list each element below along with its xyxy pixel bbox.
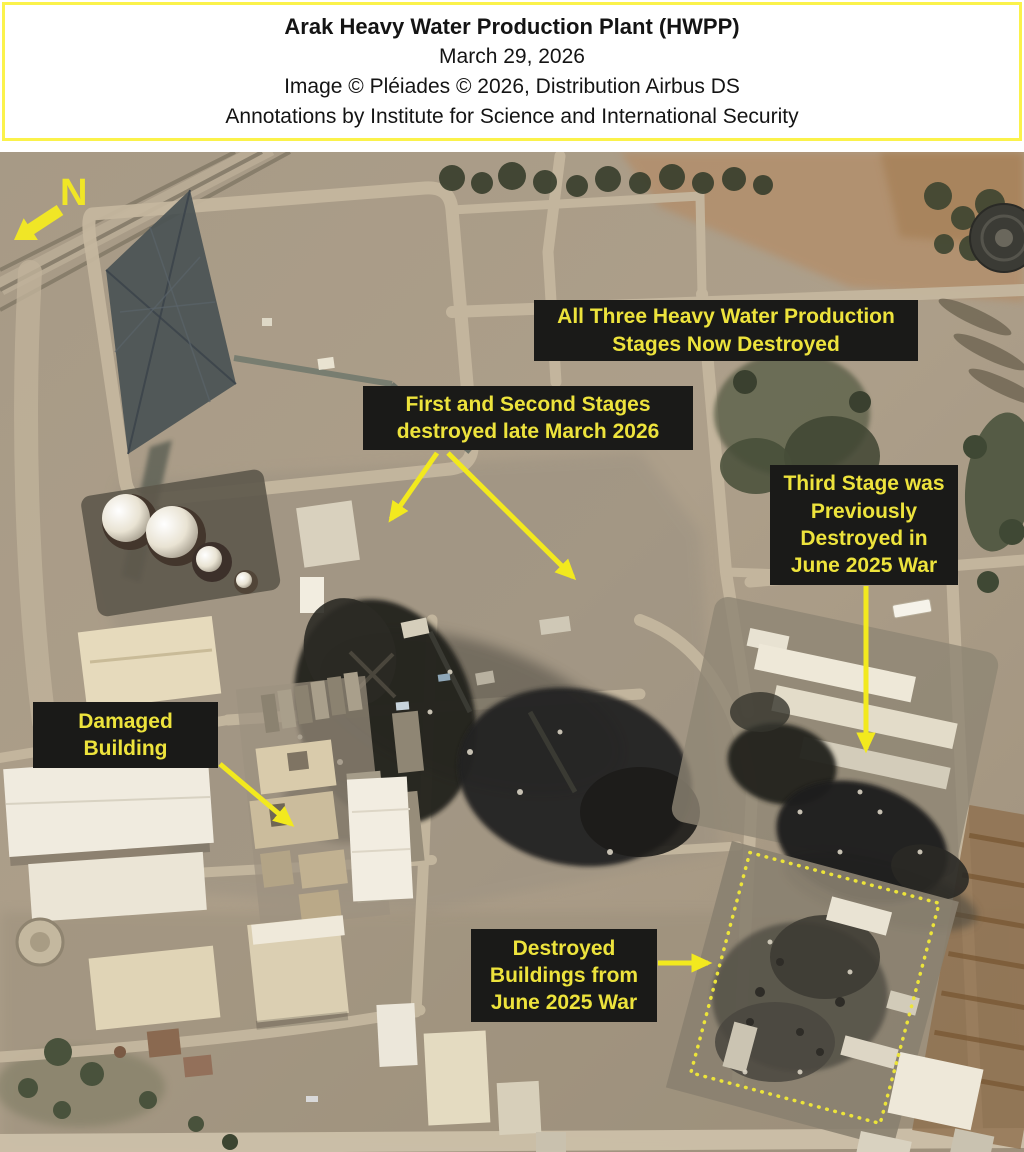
callout-line: Previously: [811, 498, 917, 525]
callout-line: Destroyed in: [800, 525, 927, 552]
north-arrow-icon: [14, 205, 63, 240]
callout-damaged-building: Damaged Building: [33, 702, 218, 768]
callout-line: Destroyed: [513, 935, 616, 962]
arrow-to-first-stage: [391, 453, 437, 519]
image-credit: Image © Pléiades © 2026, Distribution Ai…: [284, 72, 740, 102]
north-label: N: [60, 172, 87, 214]
callout-line: June 2025 War: [791, 552, 937, 579]
arrow-to-second-stage: [448, 453, 573, 577]
north-indicator: N: [60, 174, 87, 212]
title-block: Arak Heavy Water Production Plant (HWPP)…: [0, 0, 1024, 152]
callout-all-three-stages: All Three Heavy Water Production Stages …: [534, 300, 918, 361]
callout-line: Building: [84, 735, 168, 762]
callout-third-stage: Third Stage was Previously Destroyed in …: [770, 465, 958, 585]
page-title: Arak Heavy Water Production Plant (HWPP): [284, 12, 739, 42]
callout-line: destroyed late March 2026: [397, 418, 660, 445]
annotations-credit: Annotations by Institute for Science and…: [225, 102, 798, 132]
callout-line: Damaged: [78, 708, 173, 735]
satellite-image: N All Three Heavy Water Production Stage…: [0, 152, 1024, 1152]
callout-line: First and Second Stages: [405, 391, 650, 418]
callout-first-second-stages: First and Second Stages destroyed late M…: [363, 386, 693, 450]
callout-line: Stages Now Destroyed: [612, 331, 840, 358]
arrow-to-damaged-building: [220, 764, 291, 824]
callout-line: Buildings from: [490, 962, 638, 989]
callout-destroyed-buildings: Destroyed Buildings from June 2025 War: [471, 929, 657, 1022]
callout-line: Third Stage was: [783, 470, 944, 497]
title-box: Arak Heavy Water Production Plant (HWPP)…: [2, 2, 1022, 141]
annotated-satellite-report: Arak Heavy Water Production Plant (HWPP)…: [0, 0, 1024, 1152]
destroyed-area-highlight-box: [691, 853, 939, 1124]
callout-line: All Three Heavy Water Production: [557, 303, 895, 330]
callout-line: June 2025 War: [491, 989, 637, 1016]
image-date: March 29, 2026: [439, 42, 585, 72]
